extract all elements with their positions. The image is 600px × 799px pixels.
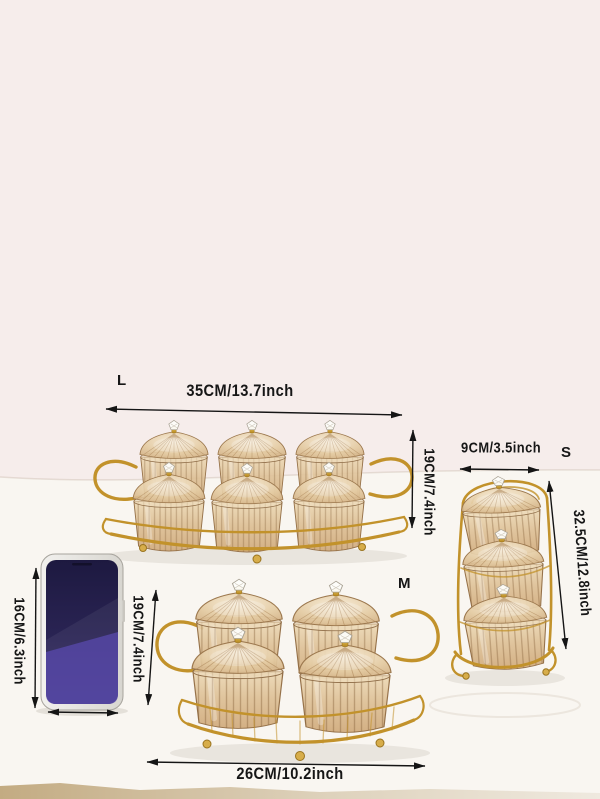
dimension-m-height: 19CM/7.4inch (130, 595, 147, 683)
dimension-l-height: 19CM/7.4inch (421, 448, 438, 536)
dim-arrow-phone-height (35, 568, 36, 708)
dimension-s-width: 9CM/3.5inch (461, 440, 541, 457)
size-label-m: M (398, 575, 411, 592)
product-photo-scene (0, 0, 600, 799)
phone-speaker (72, 563, 92, 566)
dimension-m-width: 26CM/10.2inch (236, 764, 343, 784)
phone-side-button (123, 600, 126, 622)
product-dimension-photo: L 35CM/13.7inch 19CM/7.4inch 9CM/3.5inch… (0, 0, 600, 799)
dimension-l-width: 35CM/13.7inch (186, 381, 293, 401)
size-label-l: L (117, 372, 127, 389)
size-label-s: S (561, 444, 572, 461)
phone-photo (41, 554, 125, 710)
dim-arrow-l-height (412, 430, 413, 528)
dim-arrow-phone-width (48, 712, 118, 713)
dimension-phone-height: 16CM/6.3inch (11, 597, 28, 685)
dim-arrow-s-width (460, 469, 539, 470)
